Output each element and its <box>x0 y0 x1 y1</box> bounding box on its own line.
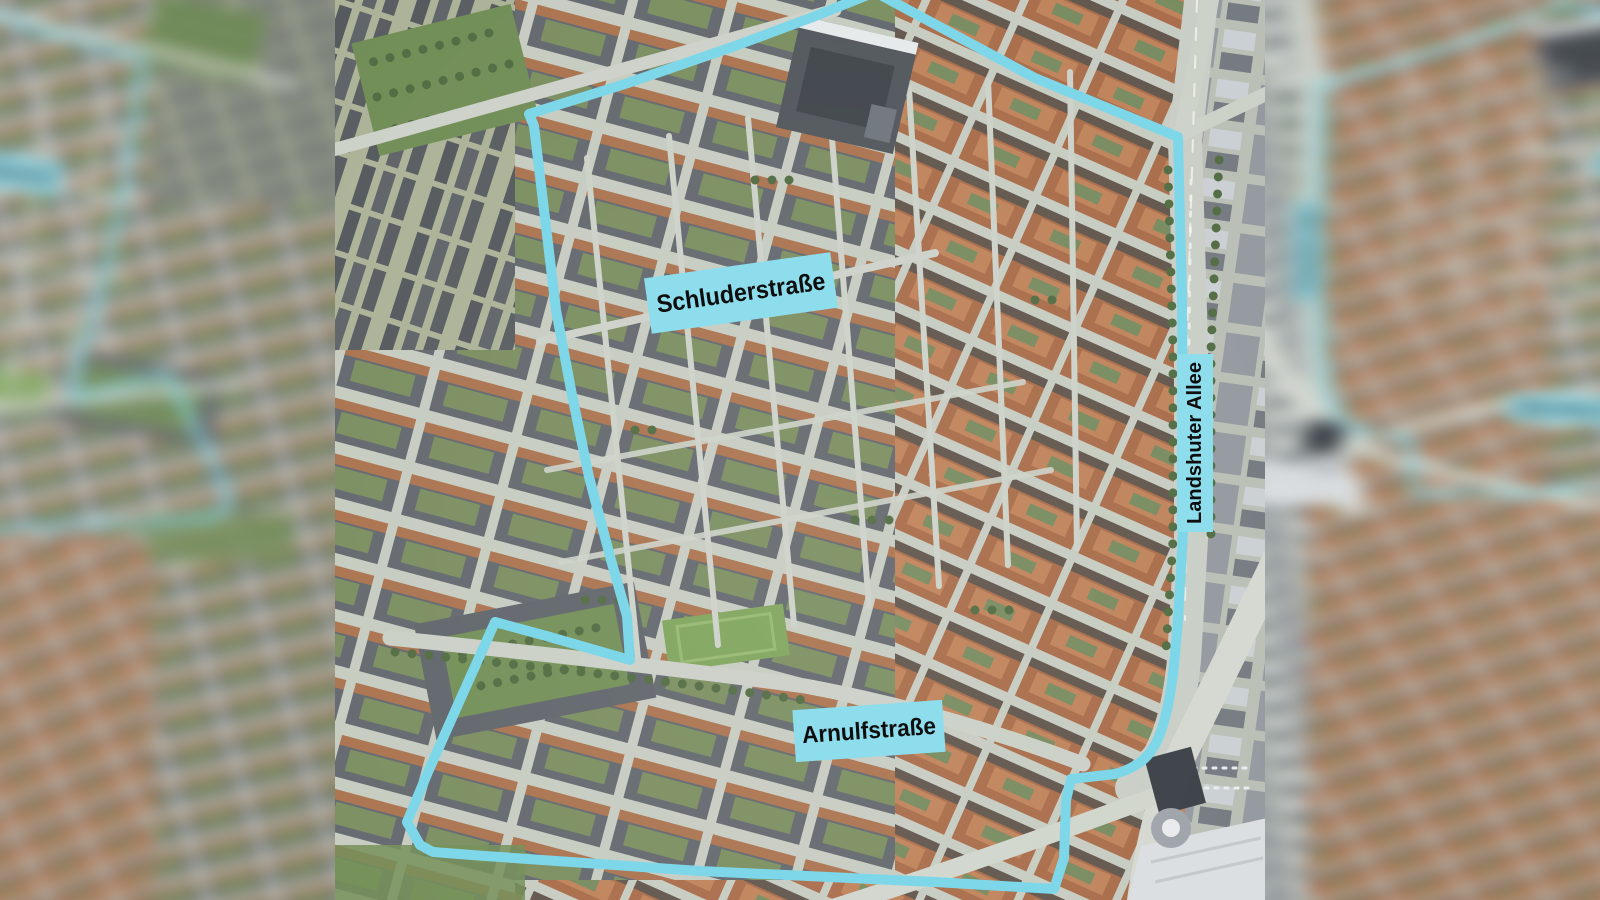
screenshot-root: Schluderstraße Arnulfstraße Landshuter A… <box>0 0 1600 900</box>
blurred-backdrop-left <box>0 0 335 900</box>
blurred-backdrop-right <box>1265 0 1600 900</box>
aerial-map <box>335 0 1265 900</box>
